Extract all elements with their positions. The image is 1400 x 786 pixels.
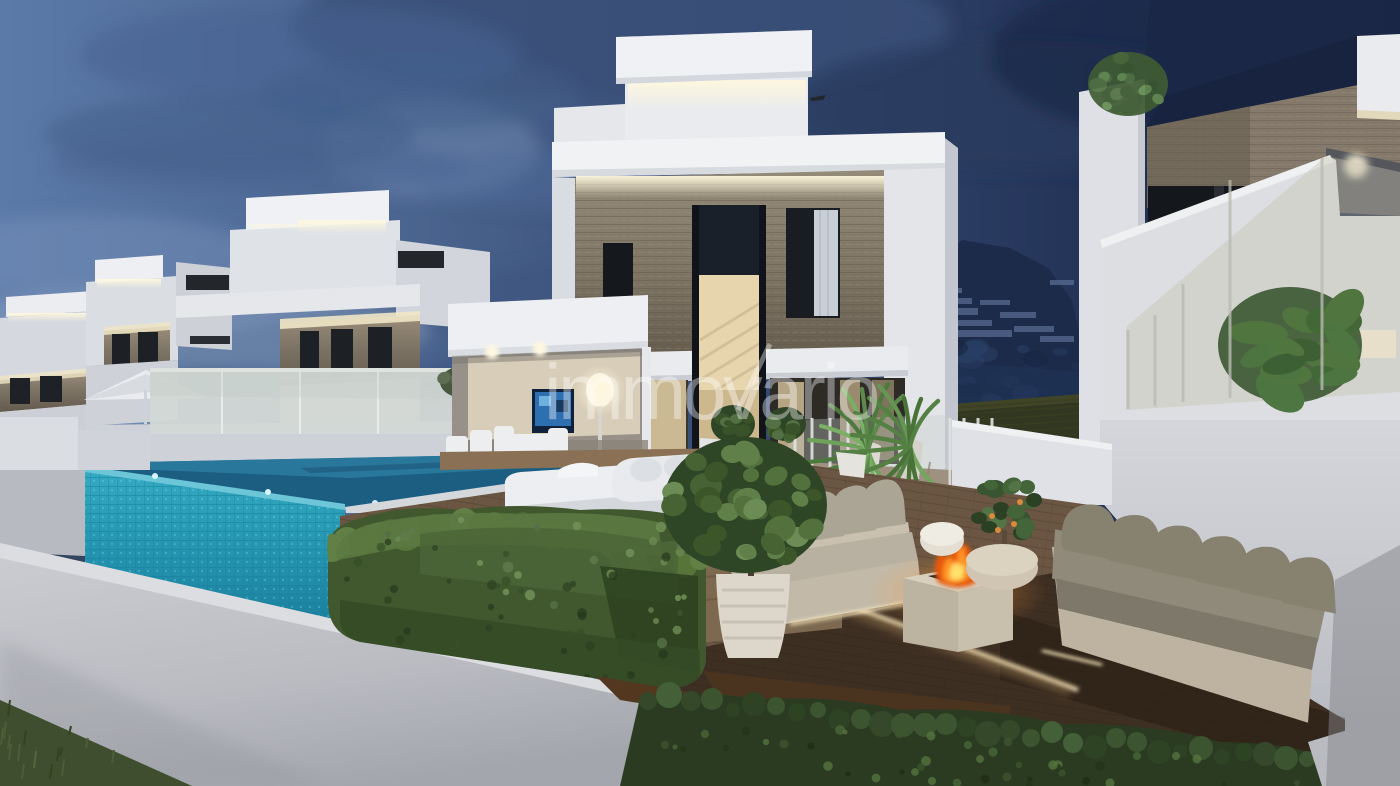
- svg-text:immovario: immovario: [544, 347, 877, 436]
